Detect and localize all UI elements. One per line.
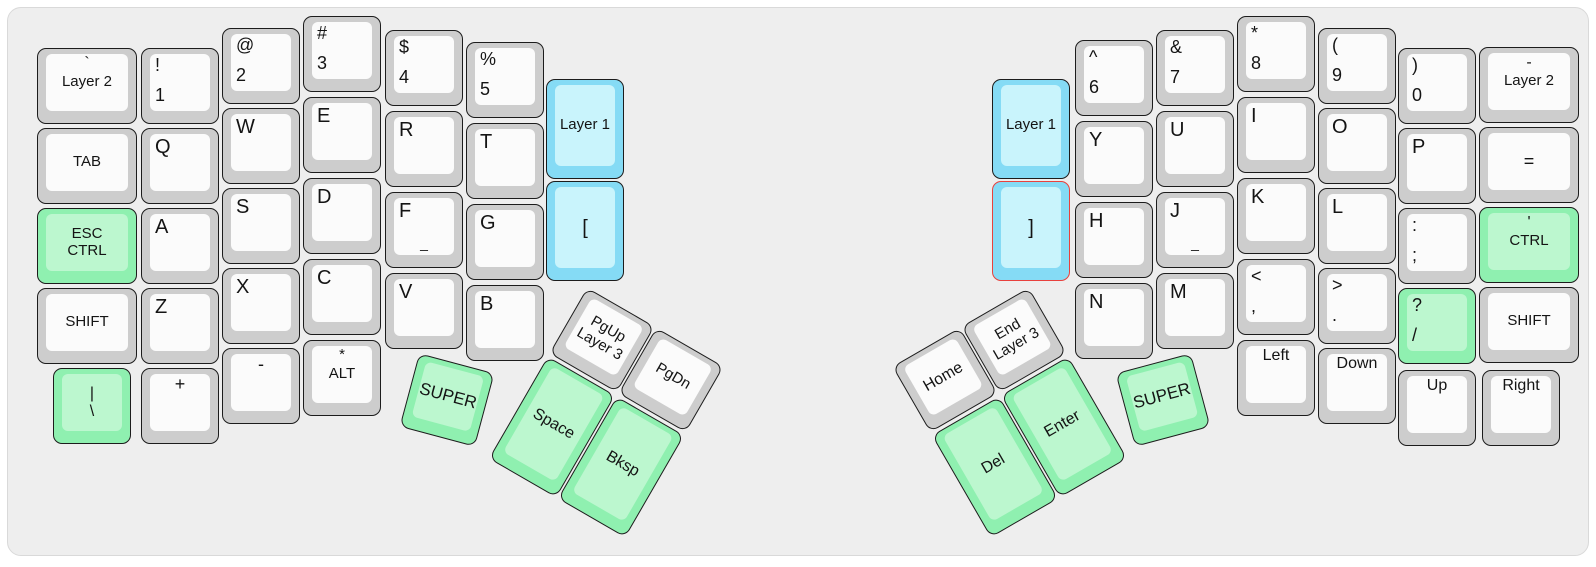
keycap-face: H bbox=[1084, 208, 1144, 265]
key-del-legend: Del bbox=[978, 450, 1008, 477]
key-home-legend: Home bbox=[920, 359, 966, 396]
key-pgdn-legend: PgDn bbox=[652, 360, 693, 393]
key-o[interactable]: O bbox=[1318, 108, 1396, 184]
key-esc-ctrl-legend: CTRL bbox=[67, 243, 106, 260]
key-asterisk-8-legend: * bbox=[1251, 24, 1258, 44]
keycap-face: P bbox=[1407, 134, 1467, 191]
key-paren-9-legend: ( bbox=[1332, 36, 1338, 56]
keycap-face: ESCCTRL bbox=[46, 214, 128, 271]
key-layer2-right-legend: - bbox=[1488, 54, 1570, 72]
keycap-face: W bbox=[231, 114, 291, 171]
keycap-face: *8 bbox=[1246, 22, 1306, 79]
key-asterisk-8-legend: 8 bbox=[1251, 54, 1261, 74]
keycap-face: X bbox=[231, 274, 291, 331]
key-layer1-right-legend: Layer 1 bbox=[1006, 117, 1056, 134]
key-h-legend: H bbox=[1089, 210, 1103, 232]
key-m[interactable]: M bbox=[1156, 273, 1234, 349]
keycap-face: Layer 1 bbox=[1001, 85, 1061, 166]
key-quote-ctrl[interactable]: CTRL' bbox=[1479, 207, 1579, 283]
key-tab[interactable]: TAB bbox=[37, 128, 137, 204]
keycap-face: Left bbox=[1246, 346, 1306, 403]
key-r-legend: R bbox=[399, 119, 413, 141]
key-f-legend: _ bbox=[394, 236, 454, 251]
key-down-arrow[interactable]: Down bbox=[1318, 348, 1396, 424]
key-v-legend: V bbox=[399, 281, 412, 303]
key-bksp-legend: Bksp bbox=[603, 447, 643, 480]
keycap-face: + bbox=[150, 374, 210, 431]
key-asterisk-alt-legend: * bbox=[312, 347, 372, 364]
key-g-legend: G bbox=[480, 212, 496, 234]
keycap-face: SUPER bbox=[1126, 361, 1199, 432]
keycap-face: - bbox=[231, 354, 291, 411]
key-question-slash-legend: ? bbox=[1412, 296, 1422, 316]
keycap-face: Q bbox=[150, 134, 210, 191]
key-colon-semicolon-legend: : bbox=[1412, 216, 1417, 236]
keycap-face: L bbox=[1327, 194, 1387, 251]
key-quote-ctrl-legend: ' bbox=[1488, 214, 1570, 232]
key-at-2-legend: @ bbox=[236, 36, 254, 56]
key-quote-ctrl-legend: CTRL bbox=[1509, 233, 1548, 250]
key-p-legend: P bbox=[1412, 136, 1425, 158]
key-x[interactable]: X bbox=[222, 268, 300, 344]
key-dollar-4-legend: 4 bbox=[399, 68, 409, 88]
key-up-arrow[interactable]: Up bbox=[1398, 370, 1476, 446]
key-hash-3-legend: 3 bbox=[317, 54, 327, 74]
key-paren-0-legend: ) bbox=[1412, 56, 1418, 76]
key-minus-legend: - bbox=[231, 355, 291, 375]
key-l[interactable]: L bbox=[1318, 188, 1396, 264]
key-o-legend: O bbox=[1332, 116, 1348, 138]
key-s[interactable]: S bbox=[222, 188, 300, 264]
keycap-face: D bbox=[312, 184, 372, 241]
key-u-legend: U bbox=[1170, 119, 1184, 141]
key-c[interactable]: C bbox=[303, 259, 381, 335]
key-hash-3-legend: # bbox=[317, 24, 327, 44]
keycap-face: ] bbox=[1001, 187, 1061, 268]
key-caret-6[interactable]: ^6 bbox=[1075, 40, 1153, 116]
keycap-face: [ bbox=[555, 187, 615, 268]
keycap-face: &7 bbox=[1165, 36, 1225, 93]
key-r[interactable]: R bbox=[385, 111, 463, 187]
key-e[interactable]: E bbox=[303, 97, 381, 173]
key-colon-semicolon-legend: ; bbox=[1412, 246, 1417, 266]
key-up-arrow-legend: Up bbox=[1407, 377, 1467, 395]
key-super-left-legend: SUPER bbox=[417, 380, 478, 413]
keycap-face: = bbox=[1488, 133, 1570, 190]
key-esc-ctrl[interactable]: ESCCTRL bbox=[37, 208, 137, 284]
key-equals[interactable]: = bbox=[1479, 127, 1579, 203]
key-plus-legend: + bbox=[150, 375, 210, 395]
keycap-face: :; bbox=[1407, 214, 1467, 271]
key-asterisk-8[interactable]: *8 bbox=[1237, 16, 1315, 92]
keycap-face: F_ bbox=[394, 198, 454, 255]
keycap-face: Layer 1 bbox=[555, 85, 615, 166]
key-j[interactable]: J_ bbox=[1156, 192, 1234, 268]
key-k-legend: K bbox=[1251, 186, 1264, 208]
keycap-face: Layer 2` bbox=[46, 54, 128, 111]
keycap-face: K bbox=[1246, 184, 1306, 241]
key-f[interactable]: F_ bbox=[385, 192, 463, 268]
keycap-face: E bbox=[312, 103, 372, 160]
key-b[interactable]: B bbox=[466, 285, 544, 361]
keycap-face: T bbox=[475, 129, 535, 186]
keycap-face: I bbox=[1246, 103, 1306, 160]
key-left-arrow[interactable]: Left bbox=[1237, 340, 1315, 416]
key-n[interactable]: N bbox=[1075, 283, 1153, 359]
key-w-legend: W bbox=[236, 116, 255, 138]
keycap-face: )0 bbox=[1407, 54, 1467, 111]
key-ampersand-7-legend: & bbox=[1170, 38, 1182, 58]
keycap-face: Down bbox=[1327, 354, 1387, 411]
key-exclam-1-legend: ! bbox=[155, 56, 160, 76]
key-shift-right-legend: SHIFT bbox=[1507, 313, 1550, 330]
key-d-legend: D bbox=[317, 186, 331, 208]
key-paren-0-legend: 0 bbox=[1412, 86, 1422, 106]
key-caret-6-legend: 6 bbox=[1089, 78, 1099, 98]
key-exclam-1[interactable]: !1 bbox=[141, 48, 219, 124]
key-greater-period-legend: . bbox=[1332, 306, 1337, 326]
key-shift-right[interactable]: SHIFT bbox=[1479, 287, 1579, 363]
key-f-legend: F bbox=[399, 200, 411, 222]
key-right-arrow[interactable]: Right bbox=[1482, 370, 1560, 446]
key-paren-9-legend: 9 bbox=[1332, 66, 1342, 86]
key-open-bracket-legend: [ bbox=[582, 217, 588, 239]
keycap-face: SUPER bbox=[412, 361, 485, 432]
keycap-face: M bbox=[1165, 279, 1225, 336]
key-j-legend: _ bbox=[1165, 236, 1225, 251]
key-layer1-left-legend: Layer 1 bbox=[560, 117, 610, 134]
key-z[interactable]: Z bbox=[141, 288, 219, 364]
key-pipe-backslash-legend: \ bbox=[90, 403, 94, 421]
key-k[interactable]: K bbox=[1237, 178, 1315, 254]
keycap-face: |\ bbox=[62, 374, 122, 431]
keycap-face: SHIFT bbox=[1488, 293, 1570, 350]
keycap-face: @2 bbox=[231, 34, 291, 91]
key-less-comma[interactable]: <, bbox=[1237, 259, 1315, 335]
key-x-legend: X bbox=[236, 276, 249, 298]
key-asterisk-alt-legend: ALT bbox=[329, 366, 355, 383]
key-tab-legend: TAB bbox=[73, 154, 101, 171]
key-pipe-backslash[interactable]: |\ bbox=[53, 368, 131, 444]
key-close-bracket-legend: ] bbox=[1028, 217, 1034, 239]
key-exclam-1-legend: 1 bbox=[155, 86, 165, 106]
key-space-legend: Space bbox=[530, 405, 578, 443]
keycap-face: ^6 bbox=[1084, 46, 1144, 103]
keycap-face: B bbox=[475, 291, 535, 348]
key-i[interactable]: I bbox=[1237, 97, 1315, 173]
key-j-legend: J bbox=[1170, 200, 1180, 222]
key-enter-legend: Enter bbox=[1041, 407, 1083, 441]
key-u[interactable]: U bbox=[1156, 111, 1234, 187]
key-pipe-backslash-legend: | bbox=[90, 385, 94, 403]
keycap-face: SHIFT bbox=[46, 294, 128, 351]
key-minus[interactable]: - bbox=[222, 348, 300, 424]
keycap-face: Layer 2- bbox=[1488, 53, 1570, 110]
key-i-legend: I bbox=[1251, 105, 1257, 127]
key-greater-period-legend: > bbox=[1332, 276, 1343, 296]
key-question-slash[interactable]: ?/ bbox=[1398, 288, 1476, 364]
key-layer2-left-legend: ` bbox=[46, 55, 128, 73]
keycap-face: Y bbox=[1084, 127, 1144, 184]
keycap-face: ?/ bbox=[1407, 294, 1467, 351]
key-g[interactable]: G bbox=[466, 204, 544, 280]
key-h[interactable]: H bbox=[1075, 202, 1153, 278]
keycap-face: TAB bbox=[46, 134, 128, 191]
key-y-legend: Y bbox=[1089, 129, 1102, 151]
keycap-face: >. bbox=[1327, 274, 1387, 331]
key-less-comma-legend: , bbox=[1251, 297, 1256, 317]
key-plus[interactable]: + bbox=[141, 368, 219, 444]
key-paren-9[interactable]: (9 bbox=[1318, 28, 1396, 104]
keycap-face: A bbox=[150, 214, 210, 271]
key-d[interactable]: D bbox=[303, 178, 381, 254]
key-at-2-legend: 2 bbox=[236, 66, 246, 86]
keycap-face: #3 bbox=[312, 22, 372, 79]
keycap-face: J_ bbox=[1165, 198, 1225, 255]
key-t[interactable]: T bbox=[466, 123, 544, 199]
key-w[interactable]: W bbox=[222, 108, 300, 184]
key-layer2-right[interactable]: Layer 2- bbox=[1479, 47, 1579, 123]
key-down-arrow-legend: Down bbox=[1327, 355, 1387, 373]
key-greater-period[interactable]: >. bbox=[1318, 268, 1396, 344]
key-q-legend: Q bbox=[155, 136, 171, 158]
key-shift-left[interactable]: SHIFT bbox=[37, 288, 137, 364]
key-dollar-4-legend: $ bbox=[399, 38, 409, 58]
key-z-legend: Z bbox=[155, 296, 167, 318]
keycap-face: R bbox=[394, 117, 454, 174]
keycap-face: C bbox=[312, 265, 372, 322]
keycap-face: V bbox=[394, 279, 454, 336]
key-percent-5-legend: 5 bbox=[480, 80, 490, 100]
key-a[interactable]: A bbox=[141, 208, 219, 284]
keycap-face: U bbox=[1165, 117, 1225, 174]
key-b-legend: B bbox=[480, 293, 493, 315]
keycap-face: !1 bbox=[150, 54, 210, 111]
keyboard-layout-stage: SUPERSpaceBkspPgUpLayer 3PgDnLayer 2`TAB… bbox=[0, 0, 1596, 567]
keycap-face: <, bbox=[1246, 265, 1306, 322]
key-esc-ctrl-legend: ESC bbox=[72, 226, 103, 243]
key-ampersand-7-legend: 7 bbox=[1170, 68, 1180, 88]
key-v[interactable]: V bbox=[385, 273, 463, 349]
key-right-arrow-legend: Right bbox=[1491, 377, 1551, 395]
keycap-face: $4 bbox=[394, 36, 454, 93]
key-asterisk-alt[interactable]: ALT* bbox=[303, 340, 381, 416]
key-t-legend: T bbox=[480, 131, 492, 153]
key-colon-semicolon[interactable]: :; bbox=[1398, 208, 1476, 284]
keycap-face: N bbox=[1084, 289, 1144, 346]
key-hash-3[interactable]: #3 bbox=[303, 16, 381, 92]
key-layer1-left[interactable]: Layer 1 bbox=[546, 79, 624, 179]
key-dollar-4[interactable]: $4 bbox=[385, 30, 463, 106]
key-super-right-legend: SUPER bbox=[1131, 380, 1192, 413]
key-question-slash-legend: / bbox=[1412, 326, 1417, 346]
keycap-face: Up bbox=[1407, 376, 1467, 433]
keycap-face: G bbox=[475, 210, 535, 267]
key-left-arrow-legend: Left bbox=[1246, 347, 1306, 365]
key-m-legend: M bbox=[1170, 281, 1187, 303]
key-percent-5-legend: % bbox=[480, 50, 496, 70]
key-at-2[interactable]: @2 bbox=[222, 28, 300, 104]
keycap-face: CTRL' bbox=[1488, 213, 1570, 270]
key-equals-legend: = bbox=[1524, 152, 1535, 172]
key-less-comma-legend: < bbox=[1251, 267, 1262, 287]
keycap-face: ALT* bbox=[312, 346, 372, 403]
keycap-face: Right bbox=[1491, 376, 1551, 433]
key-layer2-right-legend: Layer 2 bbox=[1504, 73, 1554, 90]
key-paren-0[interactable]: )0 bbox=[1398, 48, 1476, 124]
key-layer2-left[interactable]: Layer 2` bbox=[37, 48, 137, 124]
key-layer1-right[interactable]: Layer 1 bbox=[992, 79, 1070, 179]
key-q[interactable]: Q bbox=[141, 128, 219, 204]
key-percent-5[interactable]: %5 bbox=[466, 42, 544, 118]
key-a-legend: A bbox=[155, 216, 168, 238]
keycap-face: (9 bbox=[1327, 34, 1387, 91]
key-ampersand-7[interactable]: &7 bbox=[1156, 30, 1234, 106]
keycap-face: S bbox=[231, 194, 291, 251]
key-s-legend: S bbox=[236, 196, 249, 218]
key-y[interactable]: Y bbox=[1075, 121, 1153, 197]
key-shift-left-legend: SHIFT bbox=[65, 314, 108, 331]
keycap-face: %5 bbox=[475, 48, 535, 105]
key-c-legend: C bbox=[317, 267, 331, 289]
key-p[interactable]: P bbox=[1398, 128, 1476, 204]
key-l-legend: L bbox=[1332, 196, 1343, 218]
key-close-bracket[interactable]: ] bbox=[992, 181, 1070, 281]
key-caret-6-legend: ^ bbox=[1089, 48, 1097, 68]
key-n-legend: N bbox=[1089, 291, 1103, 313]
key-open-bracket[interactable]: [ bbox=[546, 181, 624, 281]
key-layer2-left-legend: Layer 2 bbox=[62, 74, 112, 91]
keycap-face: Z bbox=[150, 294, 210, 351]
keycap-face: O bbox=[1327, 114, 1387, 171]
key-e-legend: E bbox=[317, 105, 330, 127]
